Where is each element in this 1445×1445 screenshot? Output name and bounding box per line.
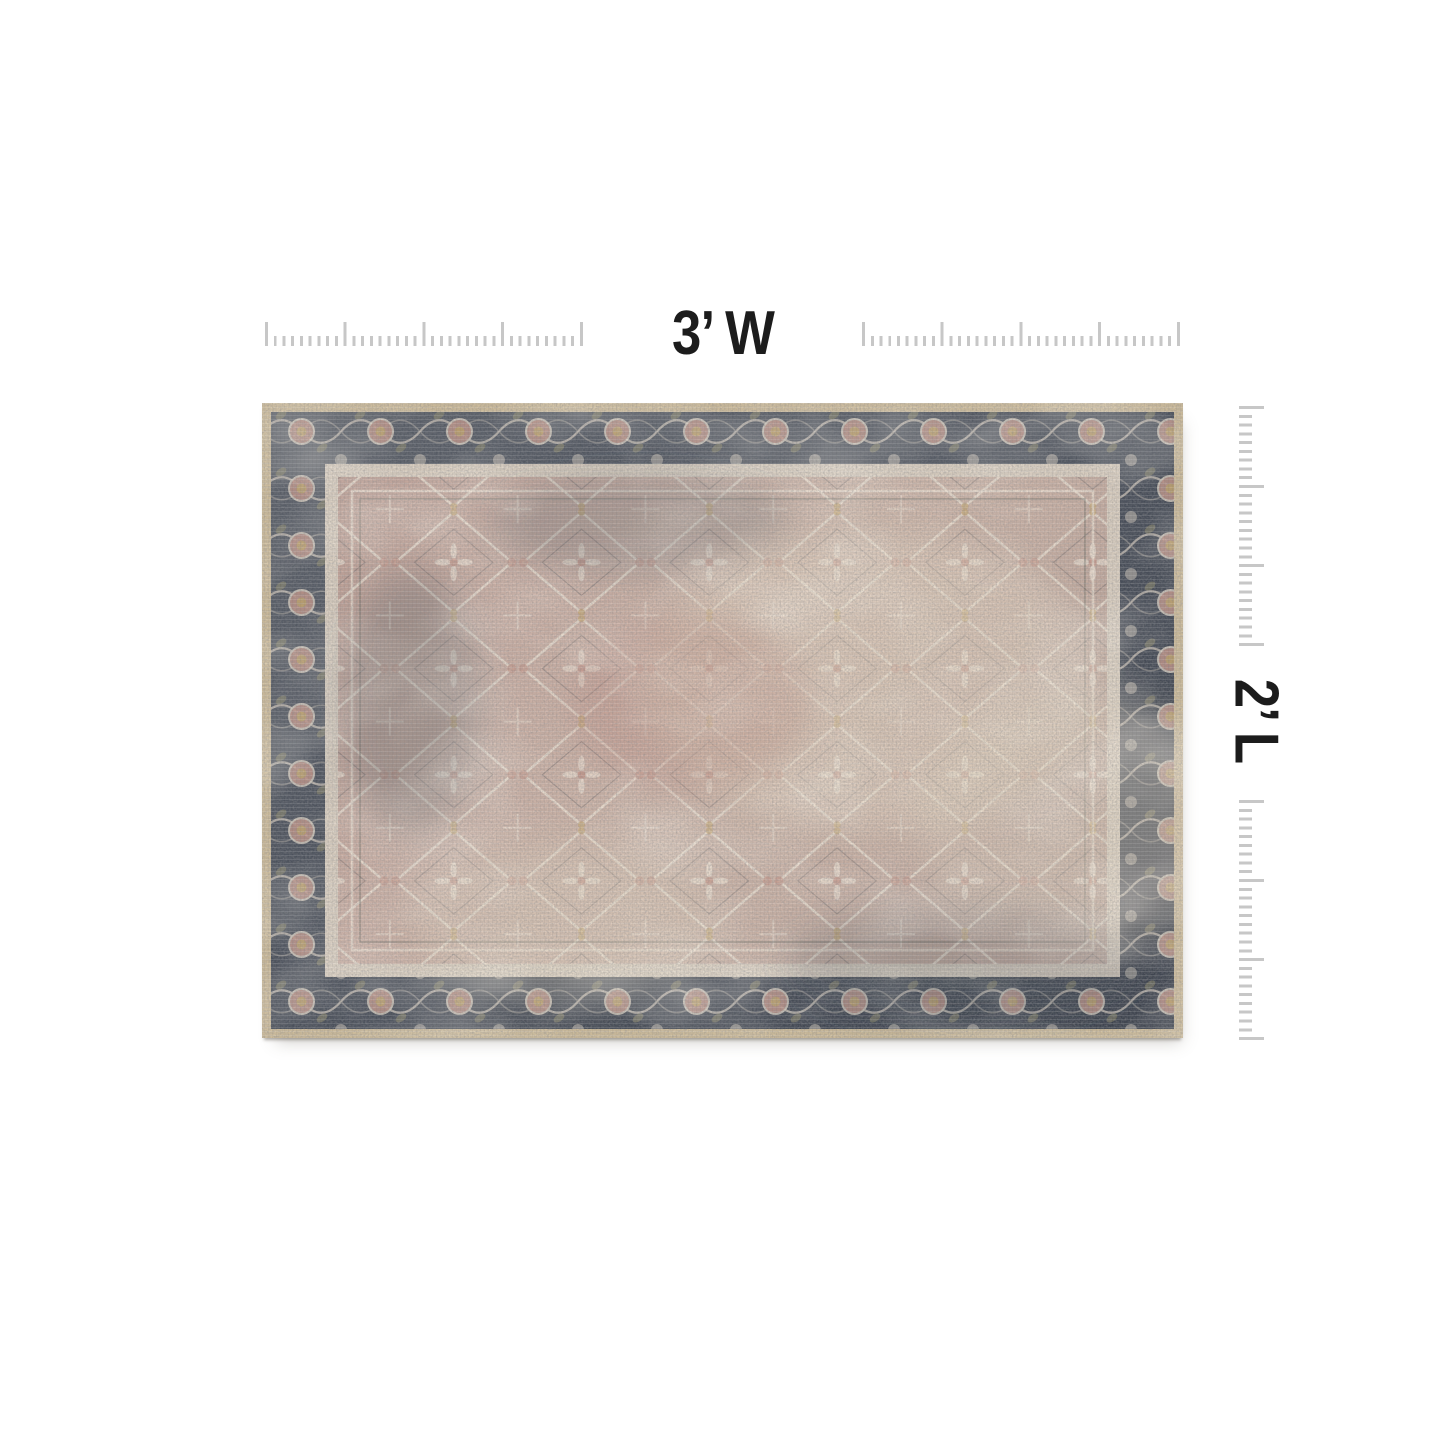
length-ruler-top-segment [1239, 406, 1264, 646]
width-ruler-left-segment [265, 322, 584, 346]
width-dimension-text: 3’ W [672, 303, 774, 365]
length-dimension-label: 2’ L [1176, 641, 1336, 801]
length-dimension-text: 2’ L [1225, 679, 1287, 763]
rug-texture-overlays [262, 403, 1183, 1038]
length-ruler-bottom-segment [1239, 800, 1264, 1042]
width-dimension-label: 3’ W [584, 303, 862, 365]
product-dimension-diagram: 3’ W 2’ L [0, 0, 1445, 1445]
rug-photo-graphic [262, 403, 1183, 1038]
rug-product-photo [262, 403, 1183, 1038]
width-ruler-right-segment [862, 322, 1181, 346]
